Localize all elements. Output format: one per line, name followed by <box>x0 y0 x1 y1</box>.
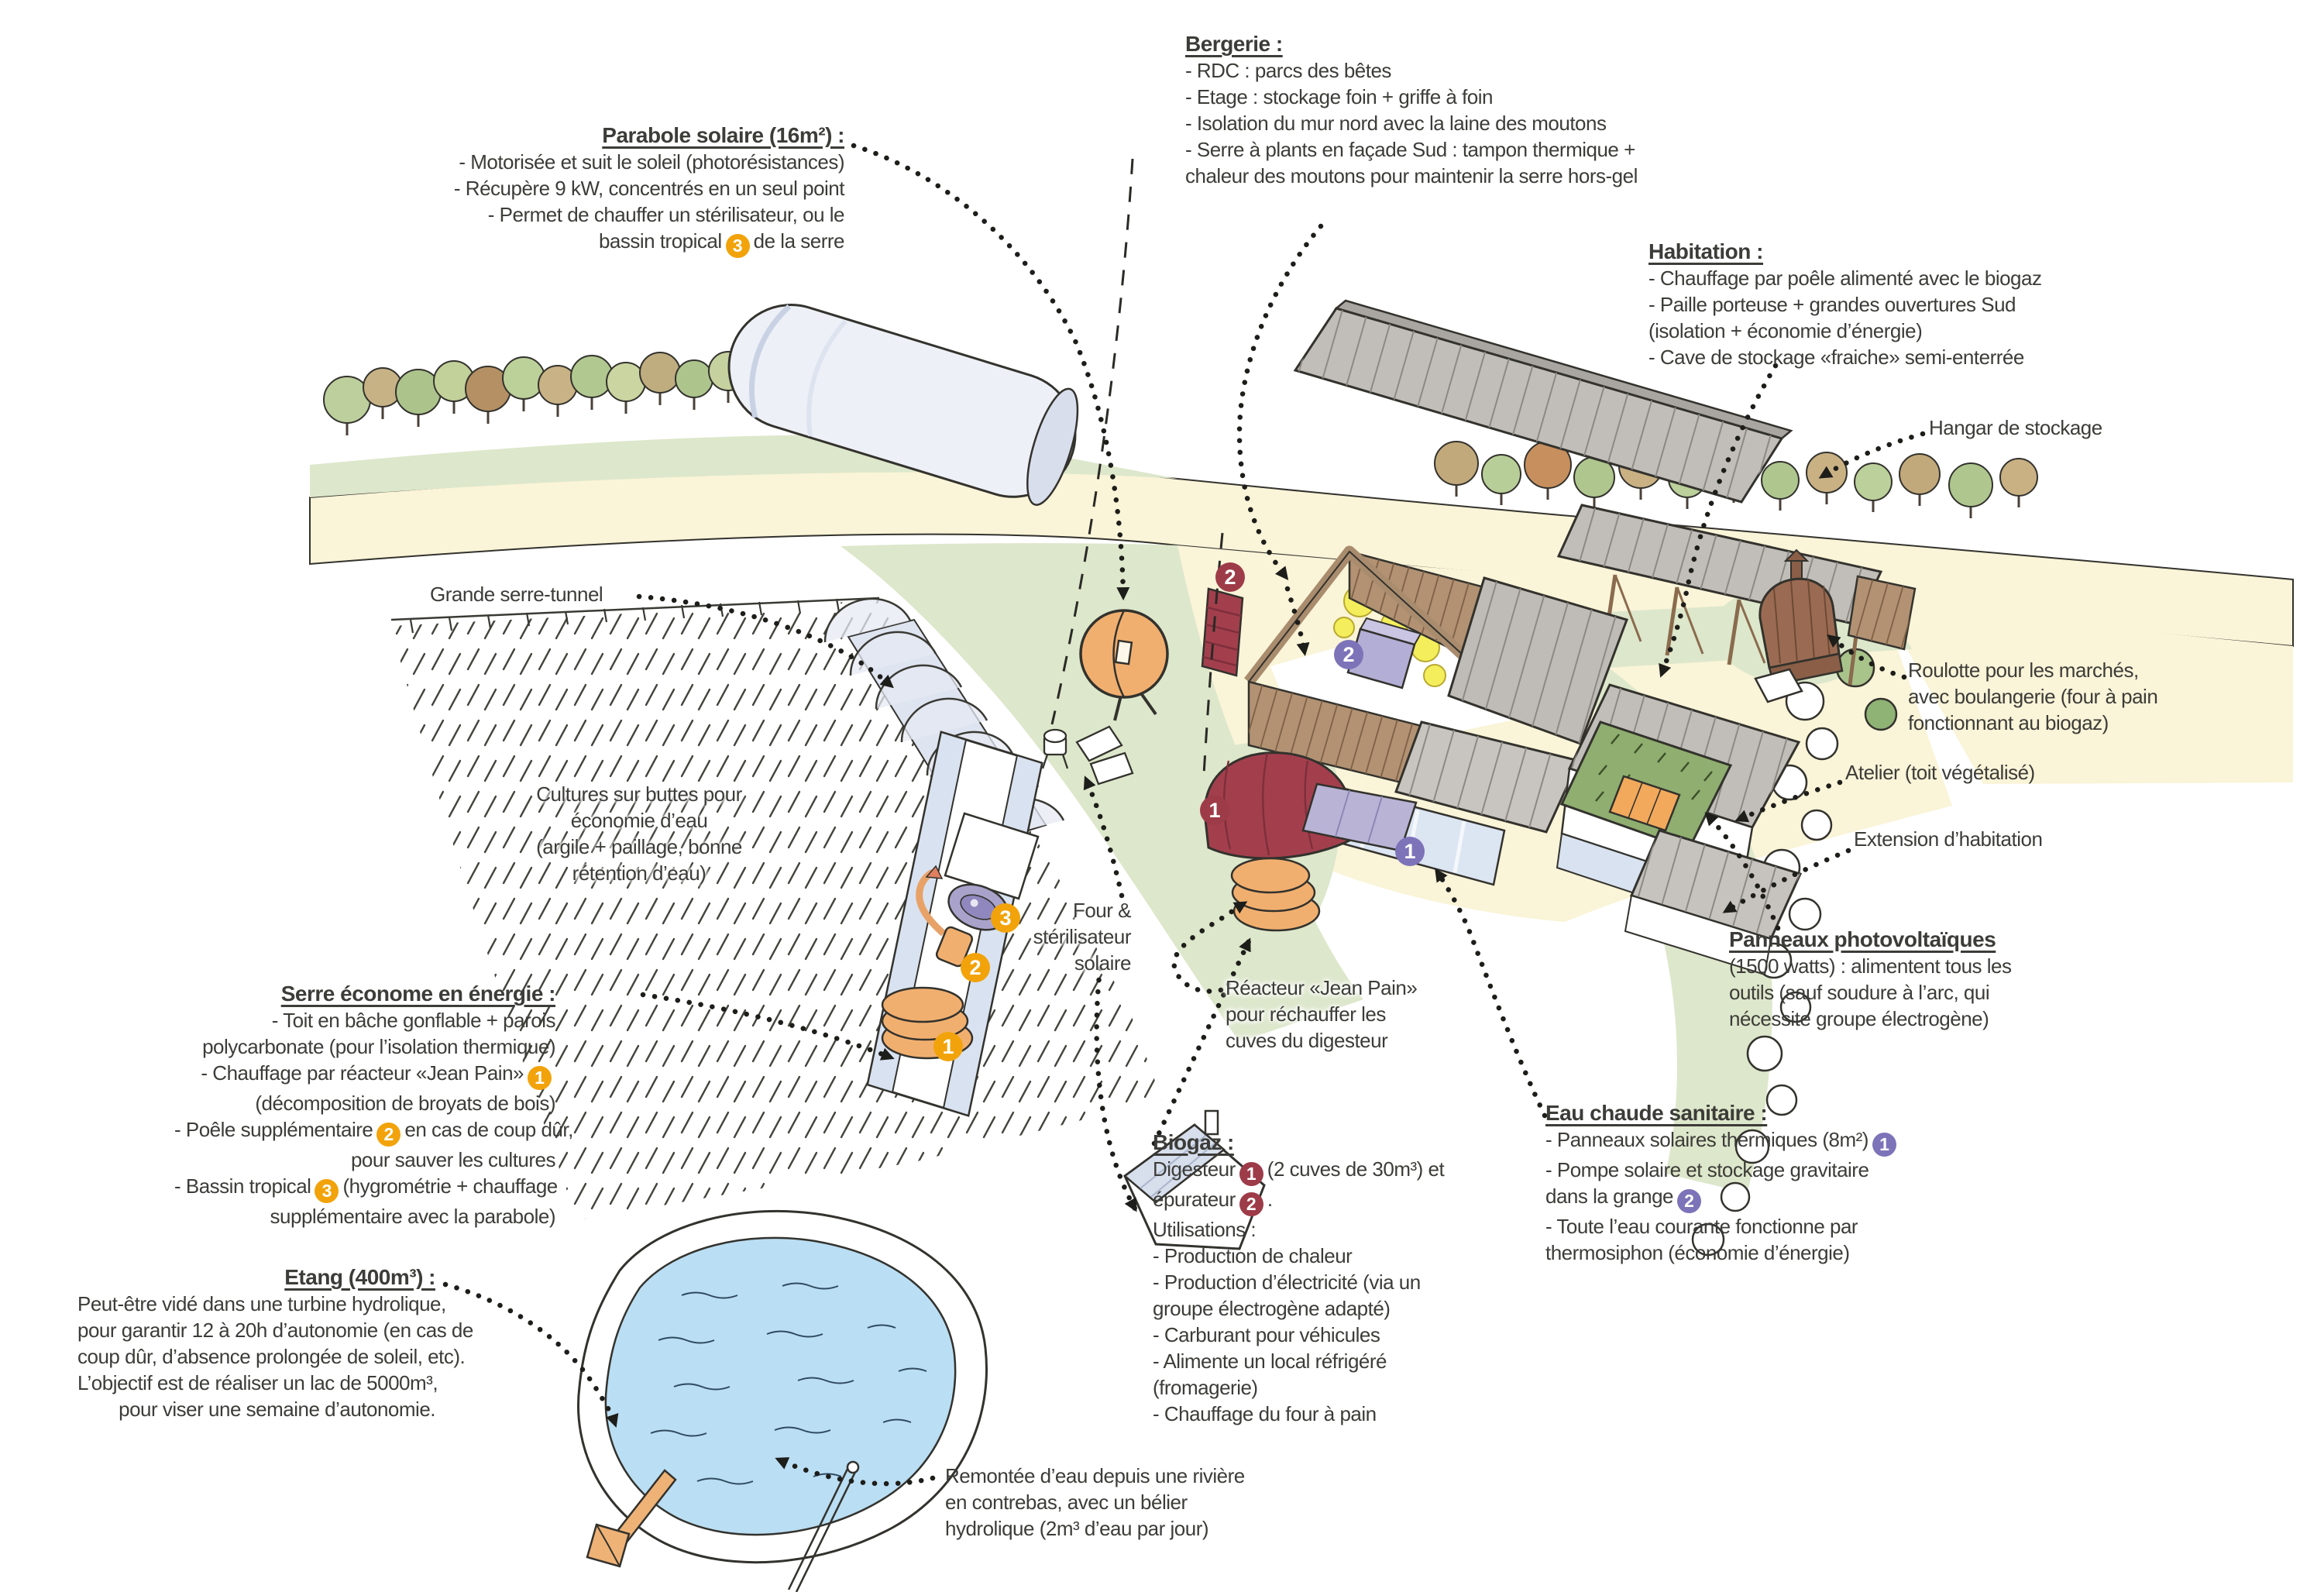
annotation-hangar: Hangar de stockage <box>1929 414 2102 441</box>
inline-badge-purple: 2 <box>1677 1189 1701 1213</box>
epurateur-tower <box>1202 589 1243 676</box>
inline-badge-maroon: 2 <box>1239 1192 1263 1216</box>
extension-label: Extension d’habitation <box>1854 826 2042 852</box>
annotation-pv: Panneaux photovoltaïques (1500 watts) : … <box>1729 927 2101 1032</box>
annotation-line: - Toute l’eau courante fonctionne par <box>1545 1213 1979 1240</box>
annotation-line: dans la grange2 <box>1545 1183 1979 1213</box>
serre-energie-title: Serre économe en énergie : <box>174 981 555 1007</box>
annotation-line: - Production d’électricité (via un <box>1153 1269 1501 1295</box>
annotation-serre-energie: Serre économe en énergie : - Toit en bâc… <box>174 981 555 1229</box>
annotation-line: fonctionnant au biogaz) <box>1908 710 2157 736</box>
annotation-etang: Etang (400m³) : Peut-être vidé dans une … <box>77 1264 435 1422</box>
pv-title: Panneaux photovoltaïques <box>1729 927 2101 953</box>
annotation-line: en contrebas, avec un bélier <box>945 1489 1245 1515</box>
annotation-atelier: Atelier (toit végétalisé) <box>1845 759 2035 786</box>
inline-badge-maroon: 1 <box>1239 1162 1263 1186</box>
permaculture-farm-diagram: 3 2 1 2 1 2 1 Bergerie : - RDC : parcs d… <box>0 0 2324 1592</box>
jean-pain-mound <box>1232 858 1319 930</box>
biogaz-title: Biogaz : <box>1153 1130 1501 1156</box>
badge-epurateur: 2 <box>1215 562 1245 592</box>
annotation-line: polycarbonate (pour l’isolation thermiqu… <box>174 1033 555 1060</box>
annotation-reacteur: Réacteur «Jean Pain» pour réchauffer les… <box>1226 975 1417 1054</box>
parabole-title: Parabole solaire (16m²) : <box>434 122 844 149</box>
annotation-line: solaire <box>1007 950 1131 976</box>
annotation-line: coup dûr, d’absence prolongée de soleil,… <box>77 1343 435 1370</box>
annotation-bergerie: Bergerie : - RDC : parcs des bêtes - Eta… <box>1185 31 1751 189</box>
annotation-line: Four & <box>1007 897 1131 923</box>
annotation-line: Remontée d’eau depuis une rivière <box>945 1463 1245 1489</box>
annotation-line: épurateur2. <box>1153 1186 1501 1216</box>
annotation-line: - RDC : parcs des bêtes <box>1185 57 1751 84</box>
annotation-line: rétention d’eau) <box>504 860 775 886</box>
bergerie-title: Bergerie : <box>1185 31 1751 57</box>
annotation-remontee: Remontée d’eau depuis une rivière en con… <box>945 1463 1245 1542</box>
annotation-line: pour réchauffer les <box>1226 1001 1417 1027</box>
annotation-four-solaire: Four & stérilisateur solaire <box>1007 897 1131 976</box>
annotation-line: - Poêle supplémentaire2en cas de coup dû… <box>174 1116 555 1147</box>
annotation-line: hydrolique (2m³ d’eau par jour) <box>945 1515 1245 1542</box>
annotation-grande-serre: Grande serre-tunnel <box>430 581 603 607</box>
annotation-line: chaleur des moutons pour maintenir la se… <box>1185 163 1751 189</box>
annotation-extension: Extension d’habitation <box>1854 826 2042 852</box>
annotation-line: pour sauver les cultures <box>174 1147 555 1173</box>
badge-serre-plants: 2 <box>1334 640 1363 669</box>
annotation-line: - Serre à plants en façade Sud : tampon … <box>1185 136 1751 163</box>
annotation-line: - Chauffage par poêle alimenté avec le b… <box>1648 265 2152 291</box>
annotation-line: Peut-être vidé dans une turbine hydroliq… <box>77 1291 435 1317</box>
annotation-line: Cultures sur buttes pour <box>504 781 775 807</box>
badge-grange-stockage: 1 <box>1395 837 1425 866</box>
annotation-line: (1500 watts) : alimentent tous les <box>1729 953 2101 979</box>
annotation-line: - Panneaux solaires thermiques (8m²)1 <box>1545 1126 1979 1157</box>
annotation-line: (fromagerie) <box>1153 1374 1501 1401</box>
annotation-line: - Cave de stockage «fraiche» semi-enterr… <box>1648 344 2152 370</box>
habitation-title: Habitation : <box>1648 239 2152 265</box>
annotation-line: thermosiphon (économie d’énergie) <box>1545 1240 1979 1266</box>
annotation-line: - Toit en bâche gonflable + parois <box>174 1007 555 1033</box>
annotation-line: pour viser une semaine d’autonomie. <box>77 1396 435 1422</box>
badge-reacteur-serre: 1 <box>933 1032 963 1061</box>
annotation-line: - Permet de chauffer un stérilisateur, o… <box>434 201 844 228</box>
annotation-line: Digesteur1(2 cuves de 30m³) et <box>1153 1156 1501 1186</box>
inline-badge-orange: 3 <box>315 1179 339 1203</box>
annotation-habitation: Habitation : - Chauffage par poêle alime… <box>1648 239 2152 370</box>
annotation-line: cuves du digesteur <box>1226 1027 1417 1054</box>
inline-badge-orange: 1 <box>528 1066 552 1090</box>
badge-digesteur: 1 <box>1200 796 1229 825</box>
annotation-line: - Production de chaleur <box>1153 1243 1501 1269</box>
annotation-line: avec boulangerie (four à pain <box>1908 683 2157 710</box>
annotation-eau-chaude: Eau chaude sanitaire : - Panneaux solair… <box>1545 1100 1979 1266</box>
atelier-label: Atelier (toit végétalisé) <box>1845 759 2035 786</box>
annotation-line: - Chauffage du four à pain <box>1153 1401 1501 1427</box>
annotation-line: - Etage : stockage foin + griffe à foin <box>1185 84 1751 110</box>
annotation-parabole: Parabole solaire (16m²) : - Motorisée et… <box>434 122 844 258</box>
annotation-line: (isolation + économie d’énergie) <box>1648 318 2152 344</box>
hangar-label: Hangar de stockage <box>1929 414 2102 441</box>
annotation-line: - Alimente un local réfrigéré <box>1153 1348 1501 1374</box>
annotation-line: outils (sauf soudure à l’arc, qui <box>1729 979 2101 1006</box>
annotation-line: - Chauffage par réacteur «Jean Pain»1 <box>174 1060 555 1090</box>
etang-title: Etang (400m³) : <box>77 1264 435 1291</box>
annotation-line: (décomposition de broyats de bois) <box>174 1090 555 1116</box>
annotation-line: supplémentaire avec la parabole) <box>174 1203 555 1229</box>
inline-badge-orange: 3 <box>726 234 750 258</box>
annotation-line: stérilisateur <box>1007 923 1131 950</box>
annotation-line: - Paille porteuse + grandes ouvertures S… <box>1648 291 2152 318</box>
annotation-line: - Motorisée et suit le soleil (photorési… <box>434 149 844 175</box>
annotation-line: économie d’eau <box>504 807 775 834</box>
annotation-line: - Isolation du mur nord avec la laine de… <box>1185 110 1751 136</box>
annotation-line: Utilisations : <box>1153 1216 1501 1243</box>
annotation-line: (argile + paillage, bonne <box>504 834 775 860</box>
annotation-line: - Récupère 9 kW, concentrés en un seul p… <box>434 175 844 201</box>
annotation-roulotte: Roulotte pour les marchés, avec boulange… <box>1908 657 2157 736</box>
annotation-line: nécessite groupe électrogène) <box>1729 1006 2101 1032</box>
eau-chaude-title: Eau chaude sanitaire : <box>1545 1100 1979 1126</box>
annotation-line: groupe électrogène adapté) <box>1153 1295 1501 1322</box>
annotation-line: Roulotte pour les marchés, <box>1908 657 2157 683</box>
annotation-line: bassin tropical3de la serre <box>434 228 844 258</box>
annotation-line: - Bassin tropical3(hygrométrie + chauffa… <box>174 1173 555 1203</box>
annotation-line: Réacteur «Jean Pain» <box>1226 975 1417 1001</box>
etang-pond <box>578 1211 986 1592</box>
annotation-line: - Pompe solaire et stockage gravitaire <box>1545 1157 1979 1183</box>
annotation-biogaz: Biogaz : Digesteur1(2 cuves de 30m³) et … <box>1153 1130 1501 1427</box>
annotation-cultures: Cultures sur buttes pour économie d’eau … <box>504 781 775 886</box>
grande-serre-label: Grande serre-tunnel <box>430 581 603 607</box>
annotation-line: - Carburant pour véhicules <box>1153 1322 1501 1348</box>
inline-badge-purple: 1 <box>1872 1133 1896 1157</box>
badge-poele: 2 <box>961 953 990 982</box>
inline-badge-orange: 2 <box>376 1123 401 1147</box>
annotation-line: L’objectif est de réaliser un lac de 500… <box>77 1370 435 1396</box>
annotation-line: pour garantir 12 à 20h d’autonomie (en c… <box>77 1317 435 1343</box>
